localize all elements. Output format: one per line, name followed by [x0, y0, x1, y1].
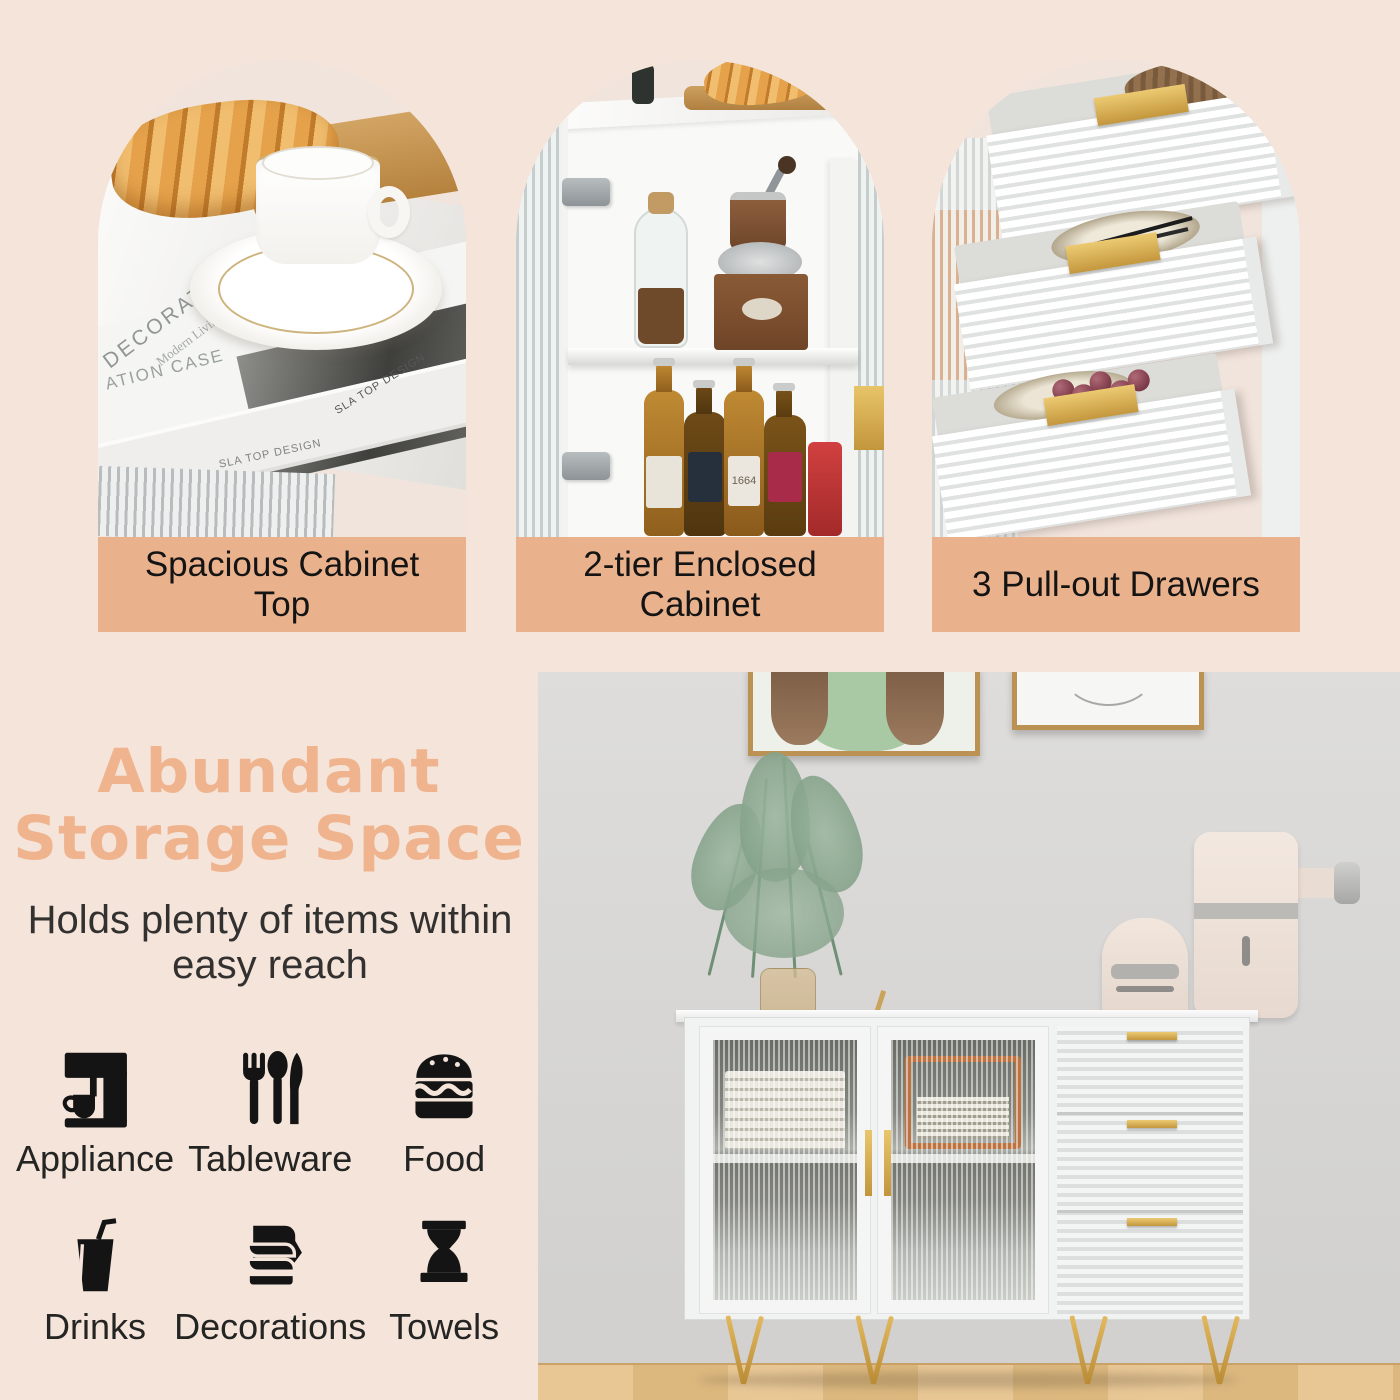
grinder-label [742, 298, 782, 320]
caption-text: Spacious Cabinet Top [124, 545, 440, 623]
storage-items-grid: Appliance Tableware [16, 1046, 522, 1348]
bottle-label [688, 452, 722, 502]
glass-door-right [877, 1026, 1049, 1314]
feature-card-cabinet-top: DECORATION CASE Modern Living ATION CASE… [98, 60, 466, 632]
feature-photo-enclosed-cabinet: 1664 [516, 60, 884, 537]
feature-card-drawers: 3 Pull-out Drawers [932, 60, 1300, 632]
feature-photo-drawers [932, 60, 1300, 537]
storage-item-label: Food [403, 1138, 485, 1180]
bottle-cork [648, 192, 674, 214]
reeded-glass [713, 1040, 857, 1300]
caption-text: 2-tier Enclosed Cabinet [542, 545, 858, 623]
small-jar [632, 64, 654, 104]
section-title: Abundant Storage Space [0, 738, 538, 872]
drawer-divider [1057, 1210, 1243, 1213]
wall-art-frame-right [1012, 672, 1204, 730]
drawer-divider [1057, 1112, 1243, 1115]
feature-caption-drawers: 3 Pull-out Drawers [932, 537, 1300, 632]
food-icon [402, 1046, 486, 1130]
drinks-icon [53, 1214, 137, 1298]
appliance-icon [53, 1046, 137, 1130]
gold-door-handle [865, 1130, 872, 1196]
bottle-label [768, 452, 802, 502]
towels-icon [402, 1214, 486, 1298]
stacked-dishes [725, 1071, 846, 1149]
bottle-label [646, 456, 682, 508]
storage-item-towels: Towels [366, 1214, 522, 1348]
machine-band [1194, 903, 1298, 920]
reeded-glass [891, 1040, 1035, 1300]
storage-item-tableware: Tableware [174, 1046, 366, 1180]
section-subtitle: Holds plenty of items within easy reach [20, 898, 520, 988]
reeded-glass-door-right [858, 118, 884, 537]
shelf-line [891, 1154, 1035, 1163]
storage-item-decorations: Decorations [174, 1214, 366, 1348]
door-hinge-top [562, 178, 610, 206]
gold-door-handle [884, 1130, 891, 1196]
eucalyptus-plant [688, 748, 878, 988]
decorations-icon [228, 1214, 312, 1298]
storage-item-label: Decorations [174, 1306, 366, 1348]
feature-caption-enclosed-cabinet: 2-tier Enclosed Cabinet [516, 537, 884, 632]
hairpin-leg [1190, 1318, 1244, 1384]
wall-art-frame-left [748, 672, 980, 756]
coffee-machine-tall [1194, 832, 1298, 1018]
storage-item-label: Towels [389, 1306, 499, 1348]
wooden-dish-rack [905, 1056, 1020, 1150]
jar-cap [636, 60, 650, 68]
machine-dispenser [1242, 936, 1250, 966]
coffee-machine-arm-cap [1334, 862, 1360, 904]
floor-shadow [698, 1372, 1238, 1388]
storage-item-label: Appliance [16, 1138, 174, 1180]
machine-control-band [1111, 964, 1180, 979]
tableware-icon [228, 1046, 312, 1130]
reeded-glass-door-left [516, 118, 568, 537]
grinder-knob [778, 156, 796, 174]
coffee-cup-handle [368, 186, 410, 238]
storage-item-label: Tableware [188, 1138, 352, 1180]
fluted-glass-door-edge [98, 466, 335, 537]
gold-drawer-handle [1127, 1120, 1177, 1128]
product-infographic: DECORATION CASE Modern Living ATION CASE… [0, 0, 1400, 1400]
artwork-hair [886, 672, 944, 745]
storage-item-appliance: Appliance [16, 1046, 174, 1180]
gold-drawer-handle [1127, 1218, 1177, 1226]
caption-text: 3 Pull-out Drawers [972, 565, 1260, 604]
artwork-hair [771, 672, 829, 745]
machine-slot [1116, 986, 1174, 992]
hairpin-leg [844, 1318, 898, 1384]
feature-caption-cabinet-top: Spacious Cabinet Top [98, 537, 466, 632]
coffee-cup-rim [262, 146, 374, 180]
sideboard [684, 1017, 1250, 1320]
coffee-machine-small [1102, 918, 1188, 1018]
lifestyle-photo [538, 672, 1400, 1400]
hairpin-leg [1058, 1318, 1112, 1384]
artwork-line [1063, 672, 1154, 706]
hairpin-leg [714, 1318, 768, 1384]
middle-shelf [568, 348, 858, 365]
red-can [808, 442, 842, 536]
gold-drawer-handle [1127, 1032, 1177, 1040]
storage-item-label: Drinks [44, 1306, 146, 1348]
stacked-plates [917, 1097, 1009, 1139]
drawer-column [1057, 1026, 1243, 1314]
glass-door-left [699, 1026, 871, 1314]
storage-item-food: Food [366, 1046, 522, 1180]
coffee-beans [638, 288, 684, 344]
bottle-label: 1664 [728, 456, 760, 506]
gold-door-handle [854, 386, 884, 450]
storage-item-drinks: Drinks [16, 1214, 174, 1348]
feature-card-enclosed-cabinet: 1664 2-tier Enclosed Cabinet [516, 60, 884, 632]
door-hinge-bottom [562, 452, 610, 480]
feature-photo-cabinet-top: DECORATION CASE Modern Living ATION CASE… [98, 60, 466, 537]
shelf-line [713, 1154, 857, 1163]
